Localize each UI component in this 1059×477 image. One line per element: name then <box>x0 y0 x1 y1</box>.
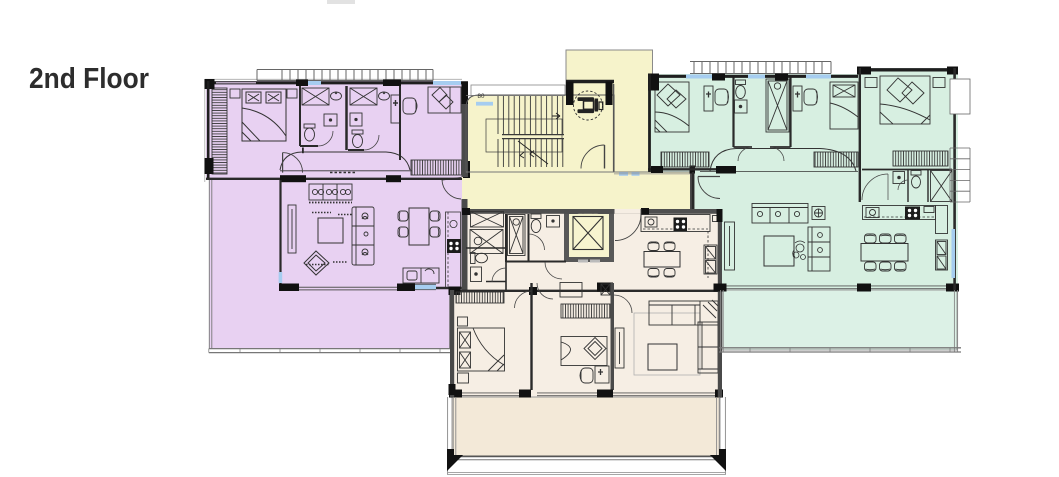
svg-text:2nd Floor: 2nd Floor <box>29 63 149 95</box>
svg-text:80: 80 <box>478 93 485 100</box>
